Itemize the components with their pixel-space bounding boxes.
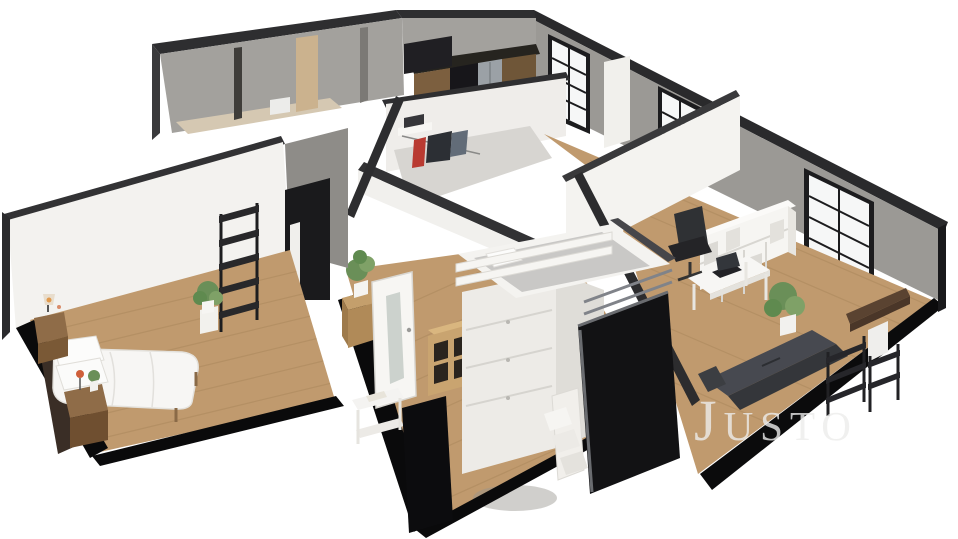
floorplan-render: Justo bbox=[0, 0, 958, 539]
white-fixture bbox=[270, 97, 290, 115]
partition-edge bbox=[234, 47, 242, 120]
loft-bed-base bbox=[462, 272, 556, 474]
watermark: Justo bbox=[694, 388, 858, 453]
wall-column bbox=[604, 56, 630, 148]
red-garment bbox=[412, 137, 426, 168]
wall-outer-edge bbox=[2, 212, 10, 340]
bathroom-utility-wing bbox=[152, 10, 404, 140]
candle-icon bbox=[57, 305, 61, 309]
walk-in-closet bbox=[346, 72, 570, 268]
black-wardrobe-panel bbox=[402, 396, 453, 533]
small-plant-icon bbox=[88, 370, 100, 382]
lamp-icon bbox=[76, 370, 84, 378]
partition-edge bbox=[360, 27, 368, 103]
east-wall-edge bbox=[938, 224, 946, 312]
white-glass-door bbox=[372, 272, 416, 408]
dark-garments bbox=[426, 131, 452, 163]
floorplan-svg: Justo bbox=[0, 0, 958, 539]
tan-accent-wall bbox=[296, 35, 318, 112]
blue-garment bbox=[450, 130, 468, 157]
bedroom-left bbox=[2, 128, 348, 466]
wall-outer-edge bbox=[152, 44, 160, 140]
wall-top-edge bbox=[396, 10, 536, 18]
